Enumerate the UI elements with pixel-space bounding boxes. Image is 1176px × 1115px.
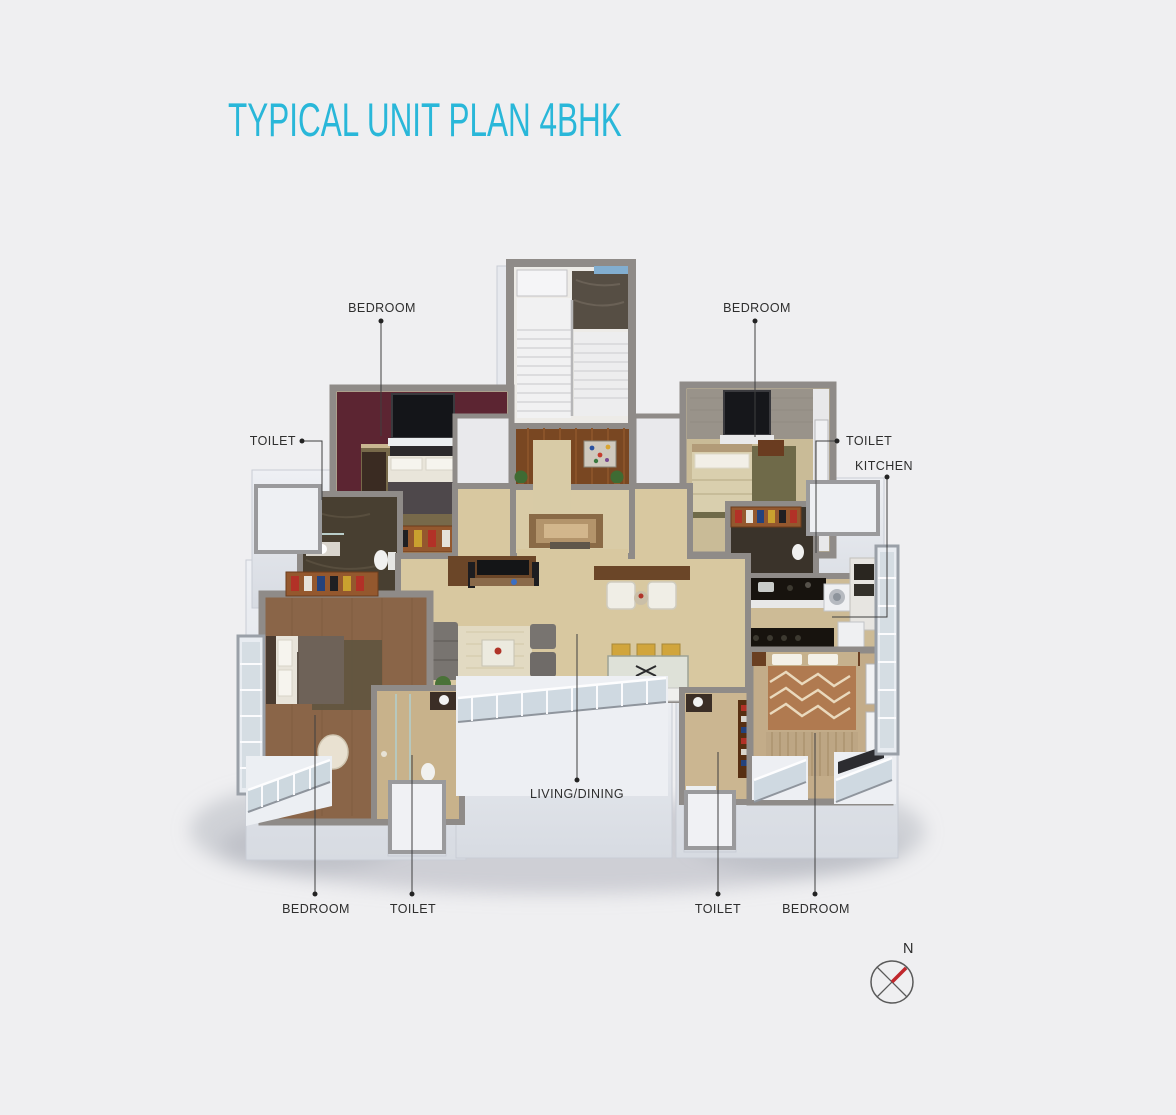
label-bedroom-top-right: BEDROOM [723,301,791,315]
stair-tower [510,263,632,428]
label-bedroom-bottom-left: BEDROOM [282,902,350,916]
compass-needle-icon [892,968,906,982]
bookshelf [731,507,801,527]
bed [266,636,344,704]
bed [752,652,860,730]
tall-cabinet [850,558,878,630]
toilet-bottom-right-room [682,690,752,802]
label-living-dining: LIVING/DINING [530,787,624,801]
entrance-foyer [513,426,632,489]
utility-box [256,486,320,552]
label-bedroom-top-left: BEDROOM [348,301,416,315]
page-title: TYPICAL UNIT PLAN 4BHK [228,94,622,146]
label-toilet-bottom-right: TOILET [695,902,741,916]
label-bedroom-bottom-right: BEDROOM [782,902,850,916]
kitchen-counter [742,578,826,608]
chest [758,440,784,456]
utility-box [808,482,878,534]
floor-plan [0,0,1176,1115]
compass [871,961,913,1003]
bookshelf [286,572,378,596]
washing-machine [824,584,850,611]
label-toilet-right: TOILET [846,434,892,448]
page: TYPICAL UNIT PLAN 4BHK BEDROOM BEDROOM T… [0,0,1176,1115]
label-toilet-left: TOILET [250,434,296,448]
label-kitchen: KITCHEN [855,459,913,473]
wall-art [584,441,616,467]
label-toilet-bottom-left: TOILET [390,902,436,916]
tv-unit [448,556,539,588]
north-label: N [903,941,913,957]
